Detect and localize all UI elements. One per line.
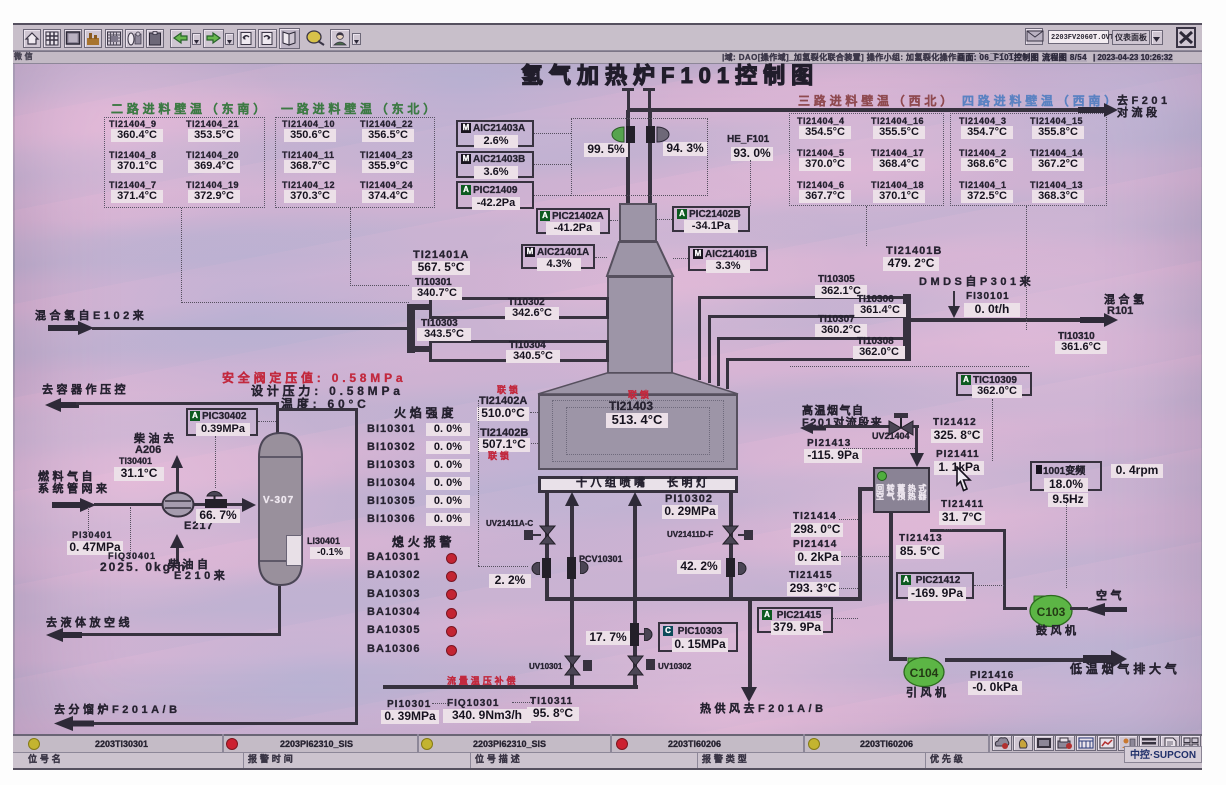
svg-text:C104: C104 bbox=[910, 666, 939, 680]
svg-text:C103: C103 bbox=[1037, 605, 1066, 619]
